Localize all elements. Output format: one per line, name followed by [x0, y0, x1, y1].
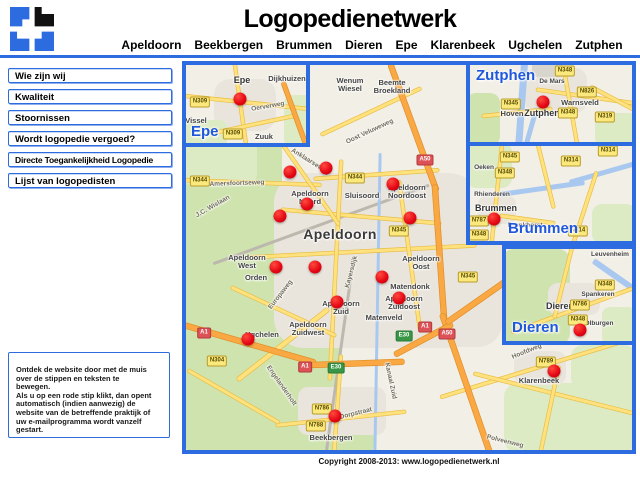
inset-label-zutphen[interactable]: Zutphen	[476, 67, 535, 84]
road-badge: N345	[389, 226, 409, 237]
site-logo	[10, 7, 54, 51]
city-nav: ApeldoornBeekbergenBrummenDierenEpeKlare…	[110, 38, 634, 52]
inset-label-epe[interactable]: Epe	[191, 123, 219, 140]
road-badge: N345	[458, 272, 478, 283]
map-area	[602, 307, 636, 345]
sidebar-button-5[interactable]: Directe Toegankelijkheid Logopedie	[8, 152, 172, 167]
map-label: Leuvenheim	[591, 251, 629, 259]
map-label: Wenum Wiesel	[337, 77, 364, 93]
location-dot[interactable]	[548, 365, 561, 378]
copyright-text: Copyright 2008-2013: www.logopedienetwer…	[182, 457, 636, 466]
instructions-box: Ontdek de website door met de muis over …	[8, 352, 170, 438]
map-canvas: Wenum WieselBeemte BroeklandOost Veluwew…	[182, 61, 636, 454]
inset-label-brummen[interactable]: Brummen	[508, 220, 578, 237]
road-badge: N348	[558, 108, 578, 119]
map-label: Dijkhuizen	[268, 75, 306, 83]
location-dot[interactable]	[488, 213, 501, 226]
map-label: Oost Veluweweg	[345, 118, 395, 147]
road-badge: N348	[495, 168, 515, 179]
road-badge: E30	[328, 363, 345, 374]
sidebar-button-3[interactable]: Stoornissen	[8, 110, 172, 125]
inset-dieren: LeuvenheimSpankerenDierenOlburgenN348N78…	[502, 245, 636, 345]
road-badge: N348	[595, 280, 615, 291]
road-badge: N787	[469, 216, 489, 227]
location-dot[interactable]	[376, 271, 389, 284]
road-badge: N314	[561, 156, 581, 167]
road-badge: A1	[298, 362, 312, 373]
map-label: Beemte Broekland	[374, 79, 411, 95]
location-dot[interactable]	[301, 198, 314, 211]
road-line	[536, 142, 555, 208]
location-dot[interactable]	[393, 292, 406, 305]
road-badge: N309	[190, 97, 210, 108]
nav-item-brummen[interactable]: Brummen	[276, 38, 332, 52]
location-dot[interactable]	[234, 93, 247, 106]
road-badge: N348	[469, 230, 489, 241]
road-badge: A1	[418, 322, 432, 333]
nav-item-epe[interactable]: Epe	[396, 38, 418, 52]
sidebar-button-2[interactable]: Kwaliteit	[8, 89, 172, 104]
map-area	[466, 142, 512, 188]
road-badge: N786	[570, 300, 590, 311]
road-badge: N344	[345, 173, 365, 184]
road-badge: N344	[190, 176, 210, 187]
location-dot[interactable]	[387, 178, 400, 191]
location-dot[interactable]	[274, 210, 287, 223]
map-area	[466, 93, 500, 146]
road-badge: A50	[438, 329, 455, 340]
inset-epe: EpeDijkhuizenOerverwegVisselZuukN309N309…	[182, 61, 310, 147]
road-badge: E30	[396, 331, 413, 342]
location-dot[interactable]	[320, 162, 333, 175]
sidebar-button-4[interactable]: Wordt logopedie vergoed?	[8, 131, 172, 146]
map-area	[504, 383, 636, 453]
location-dot[interactable]	[242, 333, 255, 346]
location-dot[interactable]	[537, 96, 550, 109]
nav-item-ugchelen[interactable]: Ugchelen	[508, 38, 562, 52]
road-badge: A1	[197, 328, 211, 339]
location-dot[interactable]	[309, 261, 322, 274]
road-badge: N314	[598, 146, 618, 157]
sidebar-button-6[interactable]: Lijst van logopedisten	[8, 173, 172, 188]
road-badge: N348	[555, 66, 575, 77]
nav-item-dieren[interactable]: Dieren	[345, 38, 382, 52]
location-dot[interactable]	[404, 212, 417, 225]
logo-icon	[10, 7, 54, 51]
inset-brummen: OekenRhienderenBrummenBronkhorstN345N348…	[466, 142, 636, 245]
road-badge: N345	[500, 152, 520, 163]
road-badge: N319	[595, 112, 615, 123]
location-dot[interactable]	[574, 324, 587, 337]
map-area	[592, 204, 636, 244]
map-label: Zuuk	[255, 133, 273, 141]
header-divider	[0, 55, 640, 58]
location-dot[interactable]	[329, 410, 342, 423]
road-badge: N826	[577, 87, 597, 98]
inset-label-dieren[interactable]: Dieren	[512, 319, 559, 336]
road-badge: A50	[416, 155, 433, 166]
sidebar-button-1[interactable]: Wie zijn wij	[8, 68, 172, 83]
road-badge: N304	[207, 356, 227, 367]
road-badge: N309	[223, 129, 243, 140]
nav-item-apeldoorn[interactable]: Apeldoorn	[121, 38, 181, 52]
nav-item-beekbergen[interactable]: Beekbergen	[194, 38, 263, 52]
road-badge: N788	[306, 421, 326, 432]
road-badge: N345	[501, 99, 521, 110]
page-title: Logopedienetwerk	[70, 5, 630, 34]
nav-item-klarenbeek[interactable]: Klarenbeek	[431, 38, 496, 52]
nav-item-zutphen[interactable]: Zutphen	[575, 38, 622, 52]
location-dot[interactable]	[331, 296, 344, 309]
location-dot[interactable]	[270, 261, 283, 274]
location-dot[interactable]	[284, 166, 297, 179]
inset-zutphen: De MarsZutphenWarnsveldHovenN348N826N345…	[466, 61, 636, 146]
